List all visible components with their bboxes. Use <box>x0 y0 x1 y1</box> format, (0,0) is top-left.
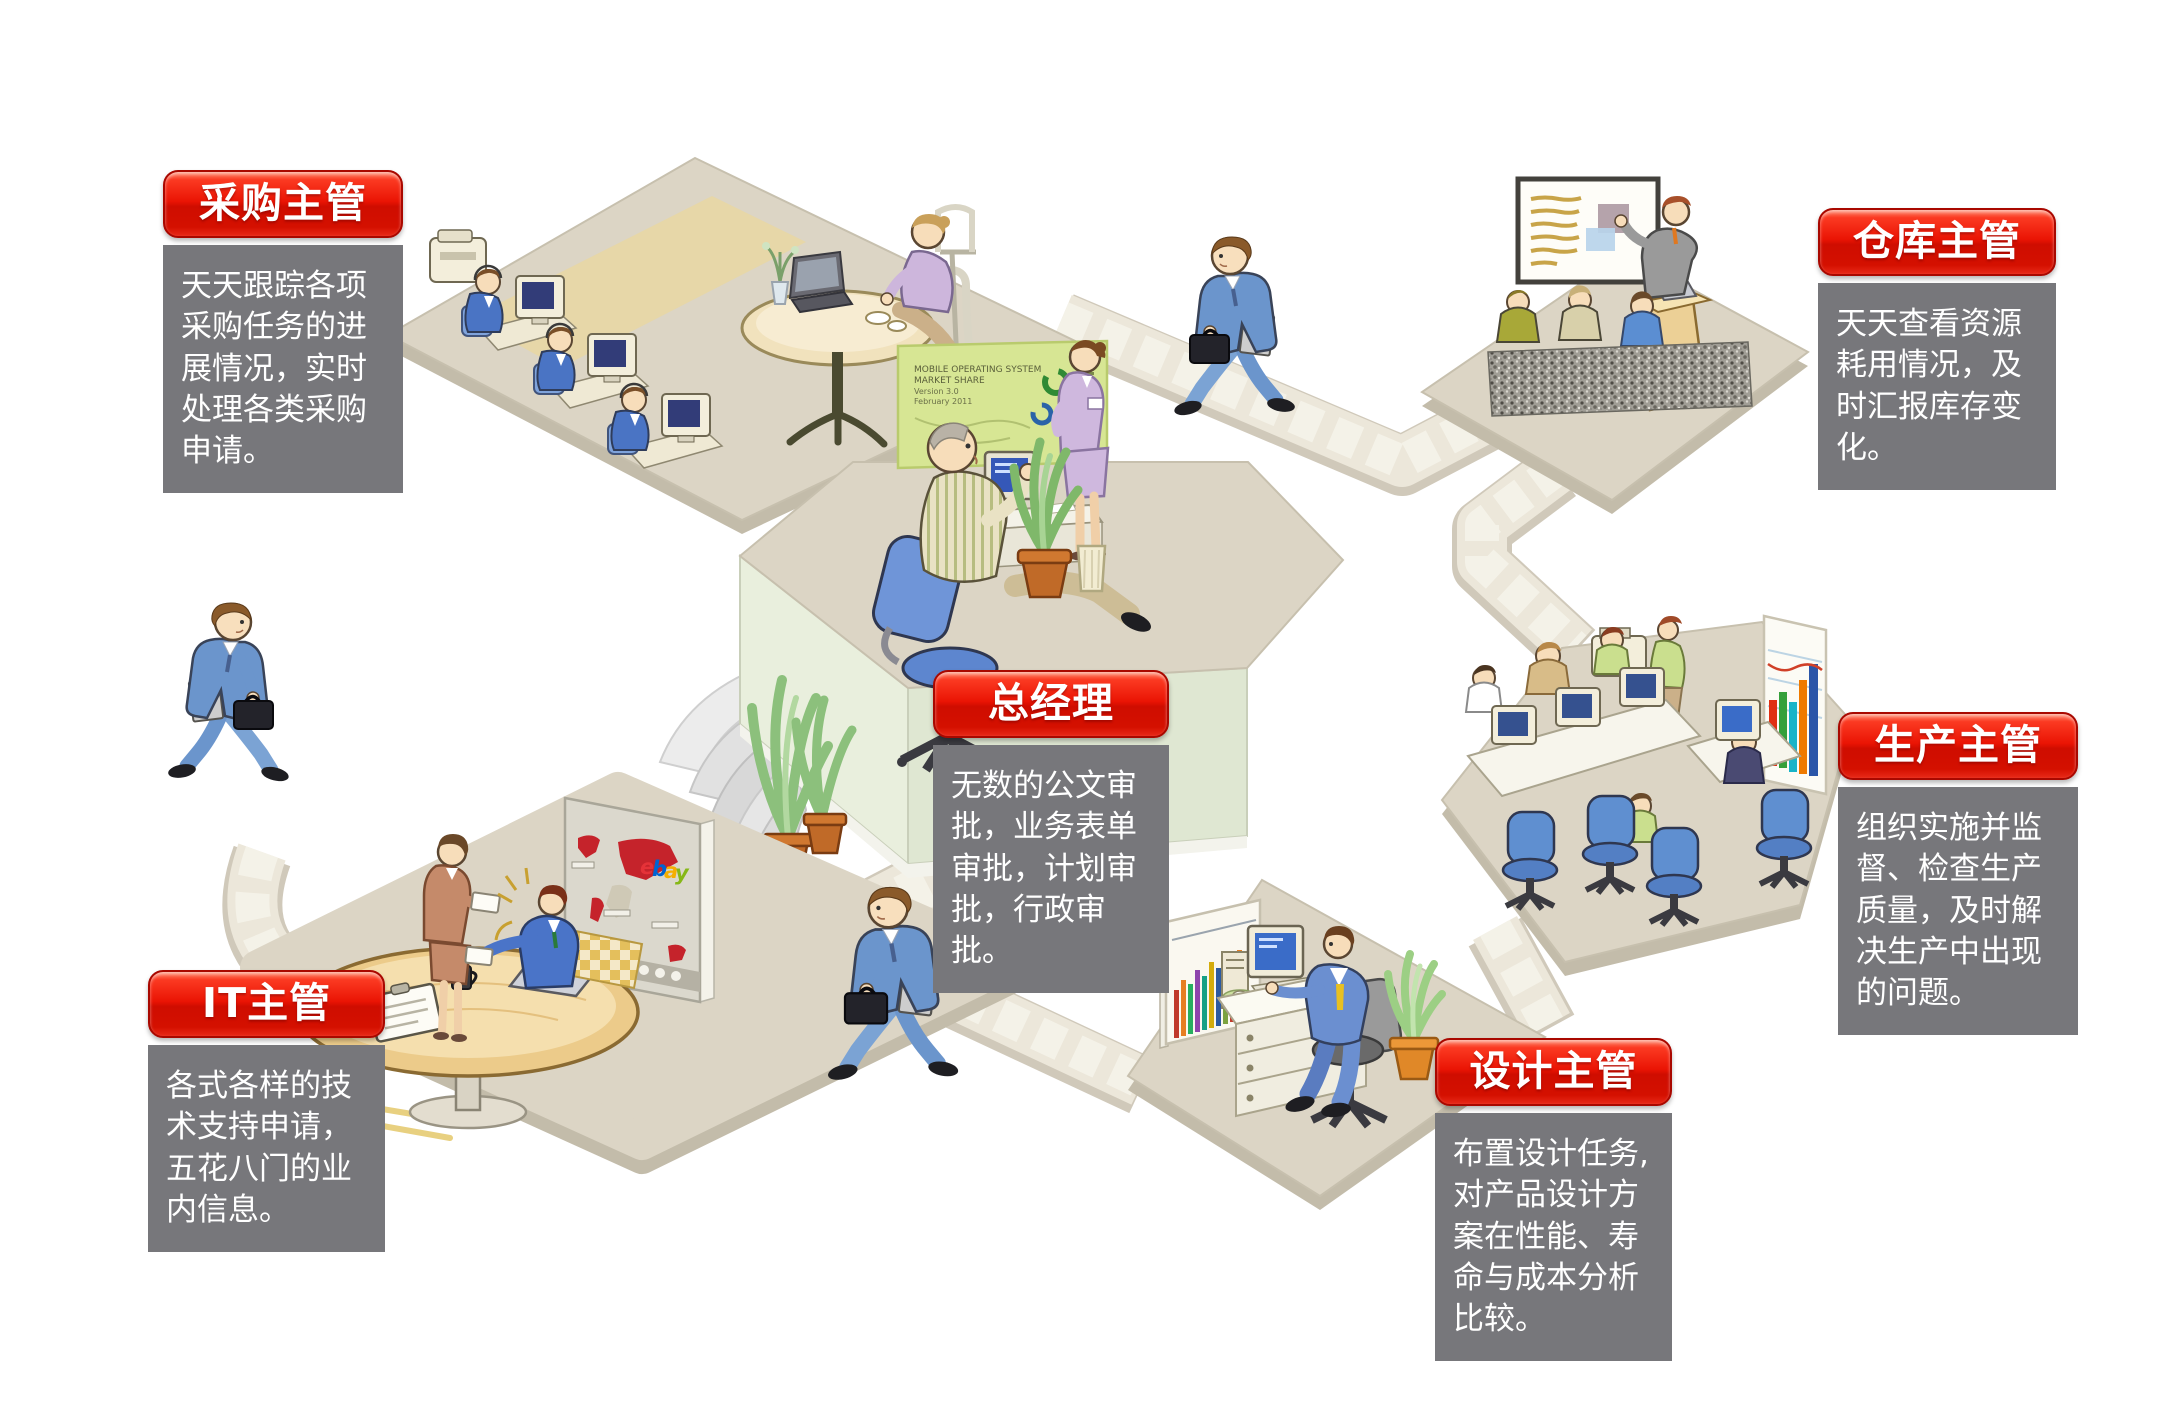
role-card-production: 生产主管 组织实施并监 督、检查生产 质量，及时解 决生产中出现 的问题。 <box>1838 712 2078 1035</box>
presentation-board <box>1518 179 1658 282</box>
warehouse-scene <box>1422 179 1808 514</box>
walking-businessman-left <box>167 603 290 784</box>
role-card-warehouse: 仓库主管 天天查看资源 耗用情况，及 时汇报库存变 化。 <box>1818 208 2056 490</box>
design-label-button[interactable]: 设计主管 <box>1435 1038 1672 1106</box>
gm-trashcan <box>1078 546 1105 591</box>
gm-board-line1: MOBILE OPERATING SYSTEM <box>914 365 1041 375</box>
production-description: 组织实施并监 督、检查生产 质量，及时解 决生产中出现 的问题。 <box>1838 787 2078 1035</box>
production-chart-board <box>1764 616 1826 794</box>
gm-board-line4: February 2011 <box>914 397 972 406</box>
it-description: 各式各样的技 术支持申请， 五花八门的业 内信息。 <box>148 1045 385 1252</box>
purchasing-label-button[interactable]: 采购主管 <box>163 170 403 238</box>
role-card-general-manager: 总经理 无数的公文审 批，业务表单 审批，计划审 批，行政审批。 <box>933 670 1169 993</box>
svg-text:y: y <box>675 861 690 885</box>
role-card-purchasing: 采购主管 天天跟踪各项 采购任务的进 展情况，实时 处理各类采购 申请。 <box>163 170 403 493</box>
production-scene <box>1442 616 1852 976</box>
general-manager-label-button[interactable]: 总经理 <box>933 670 1169 738</box>
warehouse-label-button[interactable]: 仓库主管 <box>1818 208 2056 276</box>
warehouse-description: 天天查看资源 耗用情况，及 时汇报库存变 化。 <box>1818 283 2056 490</box>
production-label-button[interactable]: 生产主管 <box>1838 712 2078 780</box>
it-label-button[interactable]: IT主管 <box>148 970 385 1038</box>
gm-board-line2: MARKET SHARE <box>914 376 985 386</box>
path-warehouse-to-production <box>1482 468 1575 652</box>
design-description: 布置设计任务, 对产品设计方 案在性能、寿 命与成本分析 比较。 <box>1435 1113 1672 1361</box>
audience-row <box>1497 285 1663 346</box>
infographic-stage: MOBILE OPERATING SYSTEM MARKET SHARE Ver… <box>0 0 2182 1416</box>
gm-board-line3: Version 3.0 <box>914 387 959 396</box>
purchasing-description: 天天跟踪各项 采购任务的进 展情况，实时 处理各类采购 申请。 <box>163 245 403 493</box>
general-manager-description: 无数的公文审 批，业务表单 审批，计划审 批，行政审批。 <box>933 745 1169 993</box>
granite-table <box>1488 342 1752 416</box>
role-card-design: 设计主管 布置设计任务, 对产品设计方 案在性能、寿 命与成本分析 比较。 <box>1435 1038 1672 1361</box>
role-card-it: IT主管 各式各样的技 术支持申请， 五花八门的业 内信息。 <box>148 970 385 1252</box>
